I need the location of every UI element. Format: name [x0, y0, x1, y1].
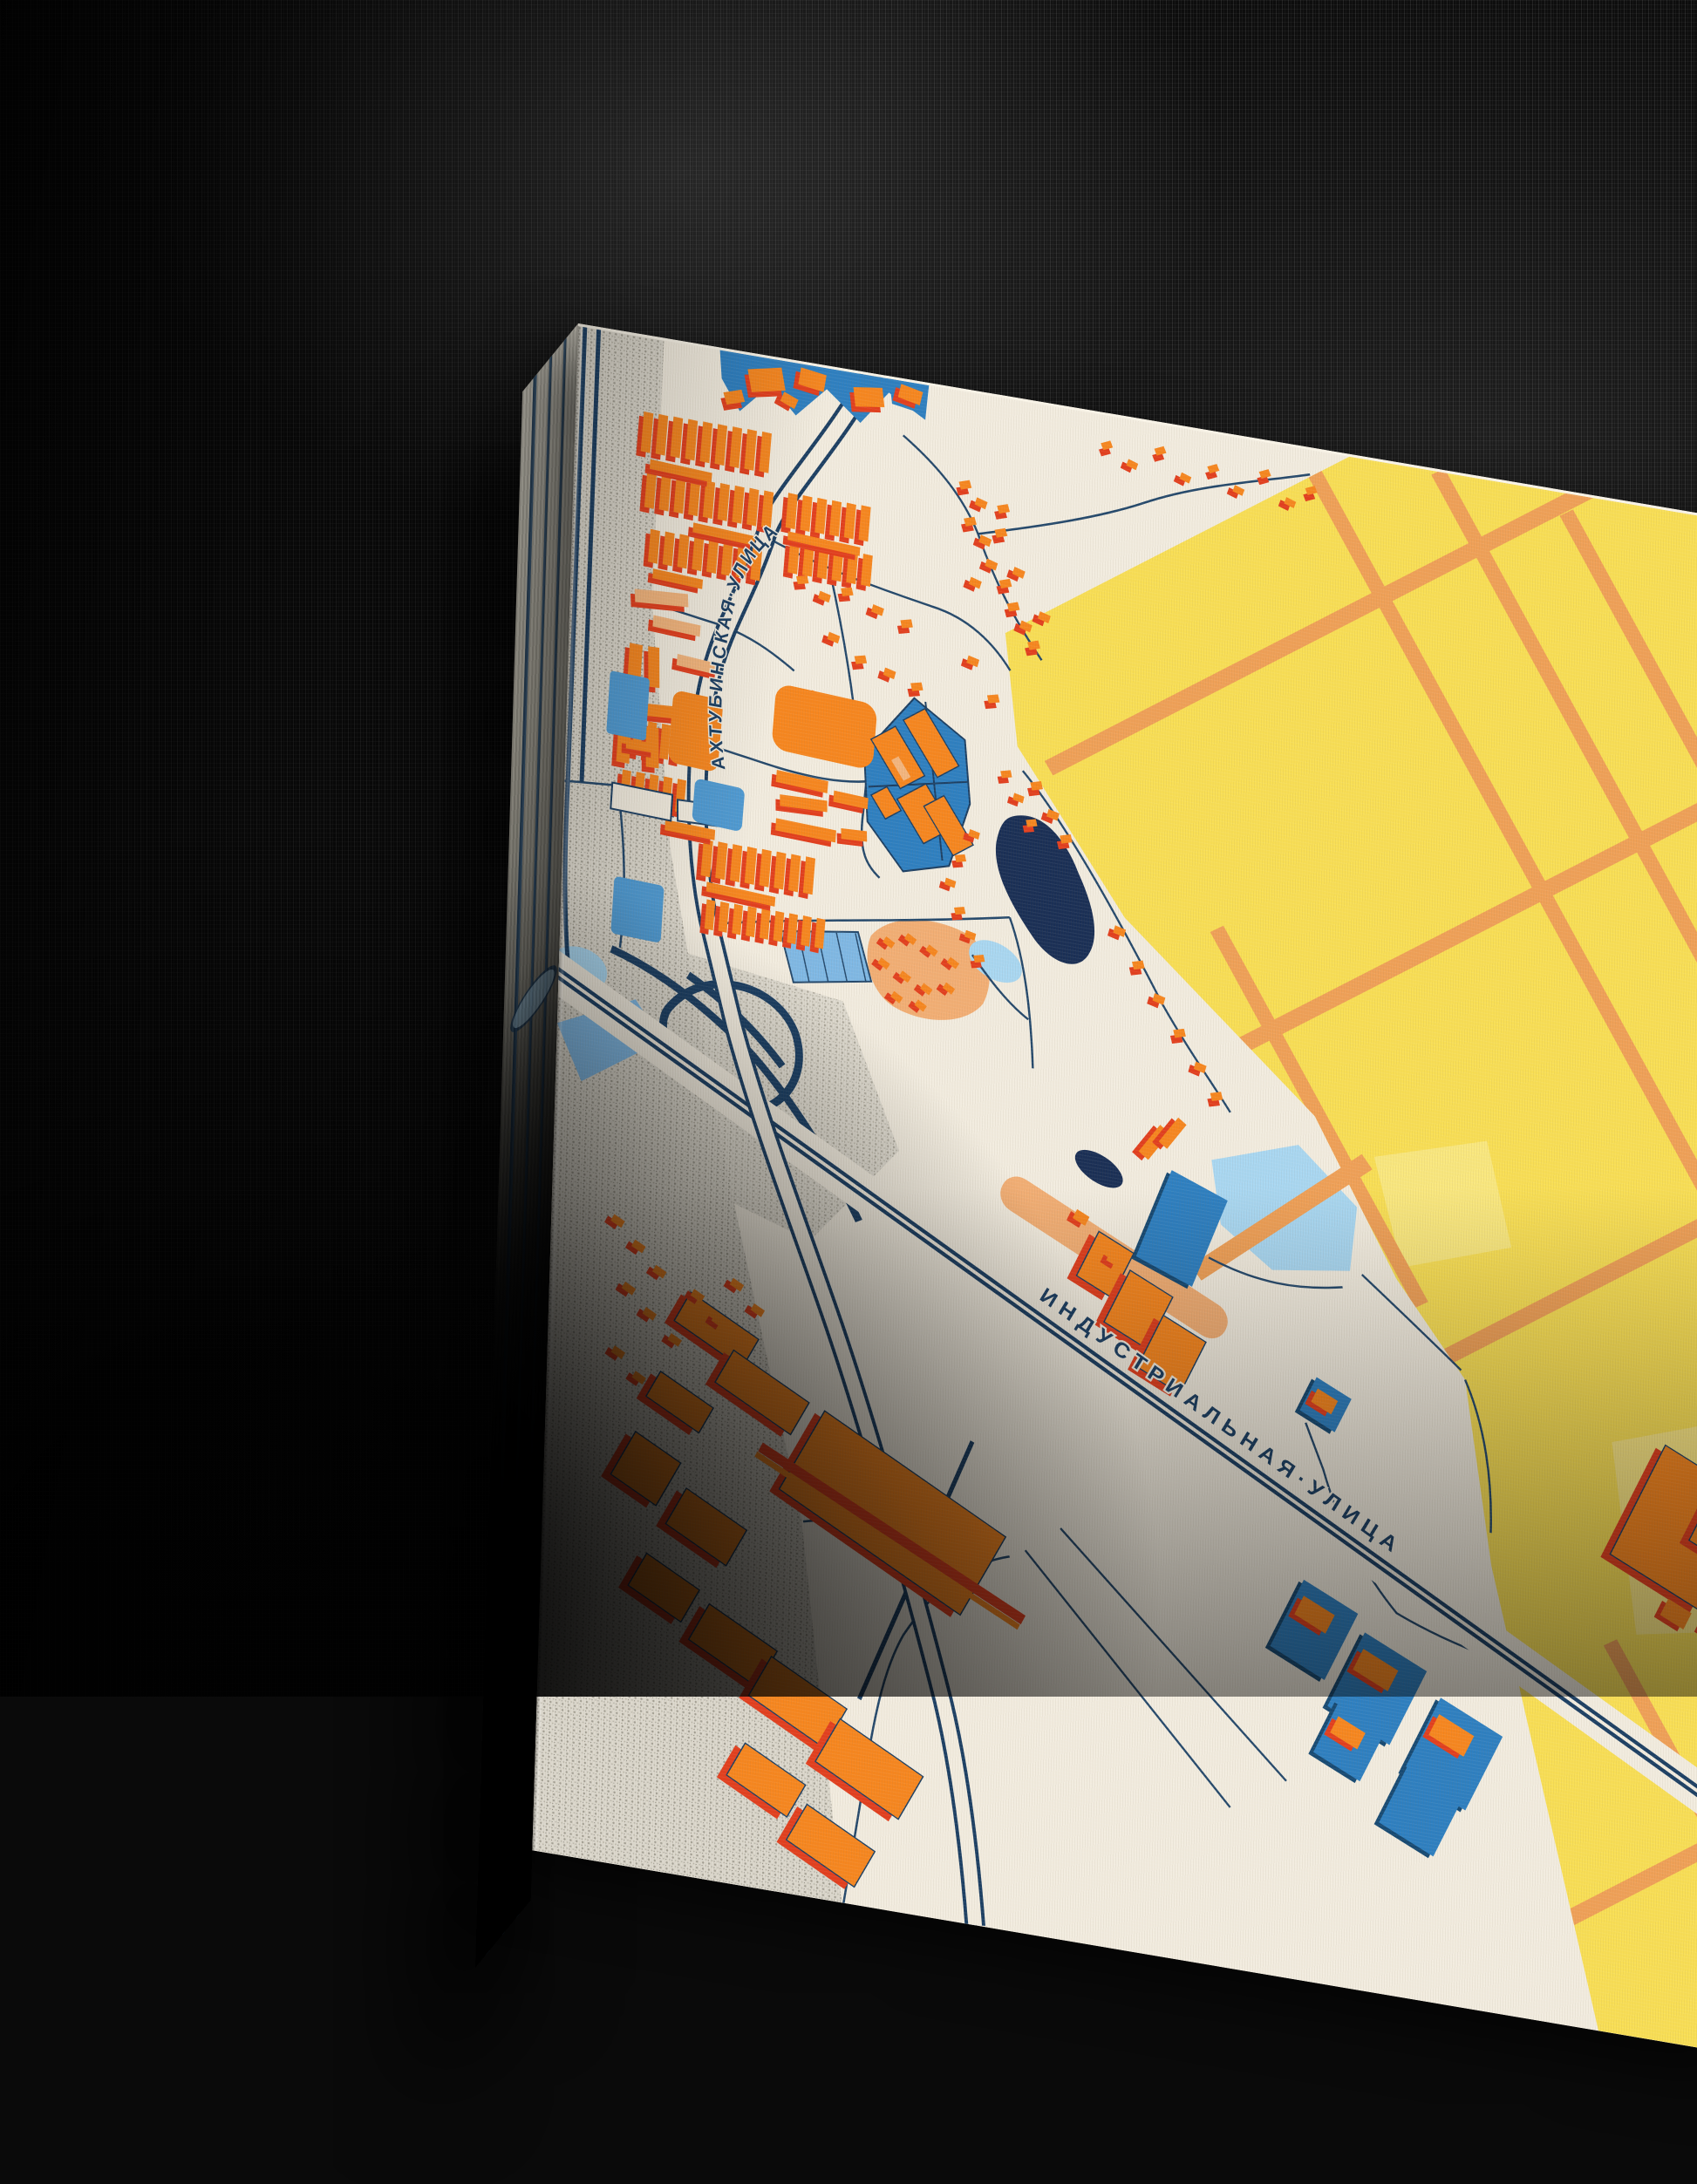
wall-vignette: [0, 0, 1697, 1697]
